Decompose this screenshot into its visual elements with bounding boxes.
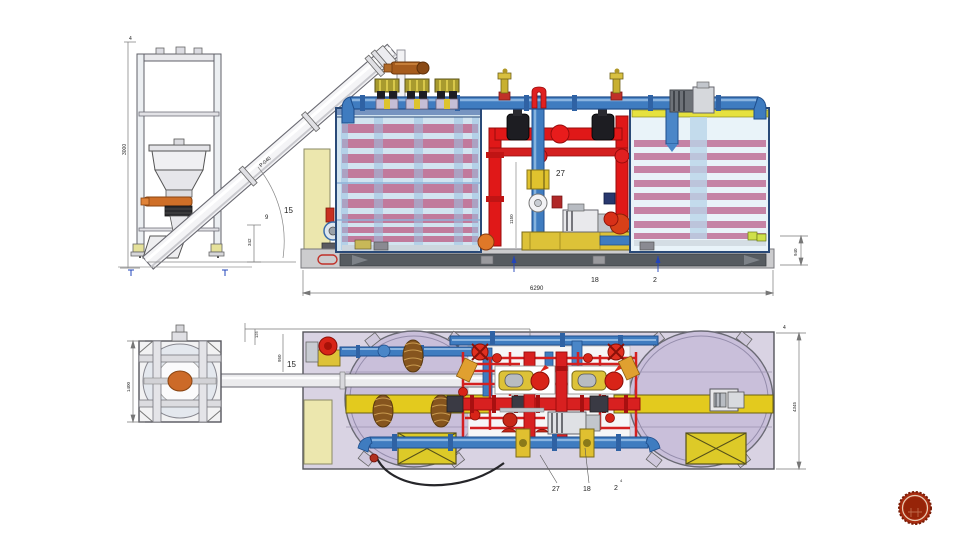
svg-text:18: 18 — [583, 486, 591, 493]
svg-text:15: 15 — [287, 360, 296, 369]
svg-text:940: 940 — [793, 248, 798, 256]
svg-text:4: 4 — [129, 36, 132, 42]
svg-text:3000: 3000 — [122, 144, 128, 155]
svg-text:6290: 6290 — [530, 286, 544, 292]
svg-text:2: 2 — [653, 277, 657, 284]
svg-text:2: 2 — [614, 485, 618, 492]
svg-text:27: 27 — [552, 486, 560, 493]
svg-text:4: 4 — [783, 325, 786, 331]
svg-text:4: 4 — [620, 478, 623, 483]
svg-text:4345: 4345 — [792, 401, 797, 412]
svg-text:15: 15 — [284, 206, 293, 215]
svg-text:125: 125 — [254, 331, 259, 338]
svg-text:1150: 1150 — [509, 214, 514, 224]
svg-text:18: 18 — [591, 277, 599, 284]
svg-text:27: 27 — [556, 169, 565, 178]
svg-text:1400: 1400 — [126, 381, 131, 392]
svg-text:342: 342 — [247, 238, 252, 246]
svg-text:950: 950 — [277, 354, 282, 362]
svg-text:9: 9 — [265, 215, 269, 221]
